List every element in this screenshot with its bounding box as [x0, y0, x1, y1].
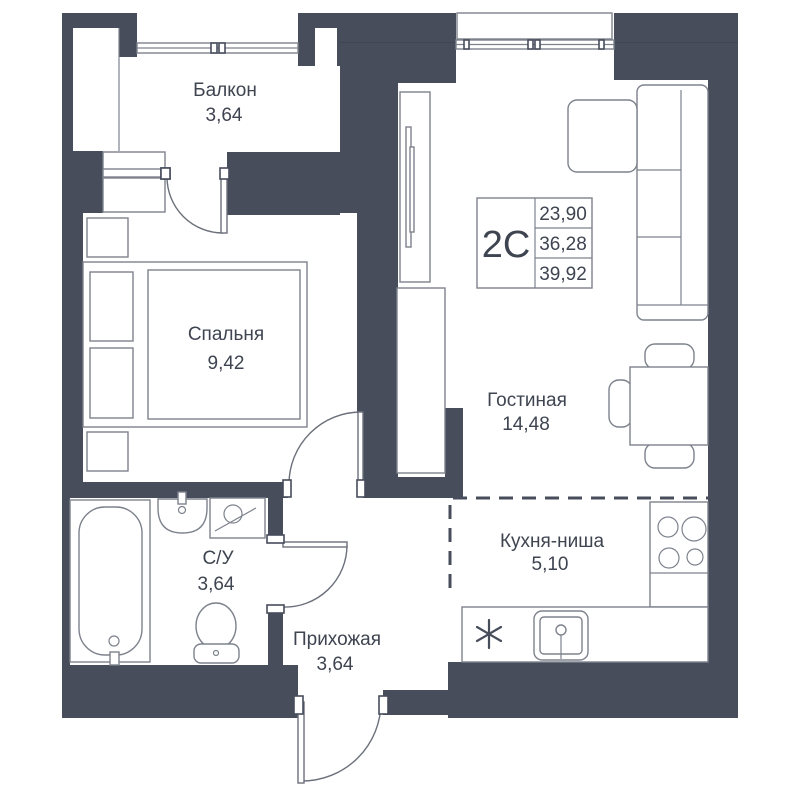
kitchen-label: Кухня-ниша [500, 531, 605, 552]
area-value-total-balcony: 39,92 [539, 264, 587, 285]
nightstand-top [87, 218, 128, 257]
bedroom-balcony-window [103, 152, 168, 212]
wardrobe [397, 288, 445, 473]
stove [650, 502, 708, 607]
toilet [194, 603, 239, 663]
dining-chair-bottom [645, 443, 694, 468]
hallway-area: 3,64 [317, 654, 354, 675]
balcony-label: Балкон [193, 80, 257, 101]
area-value-living: 23,90 [539, 204, 587, 225]
bedroom-area: 9,42 [208, 353, 245, 374]
living-room-area: 14,48 [502, 414, 550, 435]
bathroom-label: С/У [202, 548, 234, 569]
entrance-door [294, 696, 388, 783]
balcony-area: 3,64 [206, 105, 243, 126]
bathroom-area: 3,64 [198, 574, 235, 595]
kitchen-sink [534, 611, 588, 660]
nightstand-bottom [87, 432, 128, 471]
unit-info-box: 2С 23,90 36,28 39,92 [477, 198, 592, 288]
balcony-door [161, 168, 229, 233]
living-room-label: Гостиная [487, 390, 567, 411]
balcony-nook [73, 28, 119, 151]
bedroom-label: Спальня [188, 324, 264, 345]
kitchen-area: 5,10 [532, 554, 569, 575]
unit-type-label: 2С [482, 224, 531, 266]
dining-chair-top [645, 344, 694, 369]
floor-plan: 2С 23,90 36,28 39,92 Балкон 3,64 Спальня… [0, 0, 800, 800]
tv-cabinet [400, 92, 430, 282]
balcony-cabinet [161, 168, 170, 179]
dining-chair-left [609, 380, 632, 427]
bathroom-sink [158, 492, 207, 533]
washing-machine [210, 498, 265, 538]
hallway-label: Прихожая [293, 629, 381, 650]
balcony-window [137, 43, 298, 53]
floor-plan-page: 2С 23,90 36,28 39,92 Балкон 3,64 Спальня… [0, 0, 800, 800]
dining-table [630, 367, 708, 445]
living-room-window [456, 13, 614, 49]
bathroom-door [267, 535, 347, 613]
bathtub [70, 500, 150, 665]
area-value-total: 36,28 [539, 234, 587, 255]
